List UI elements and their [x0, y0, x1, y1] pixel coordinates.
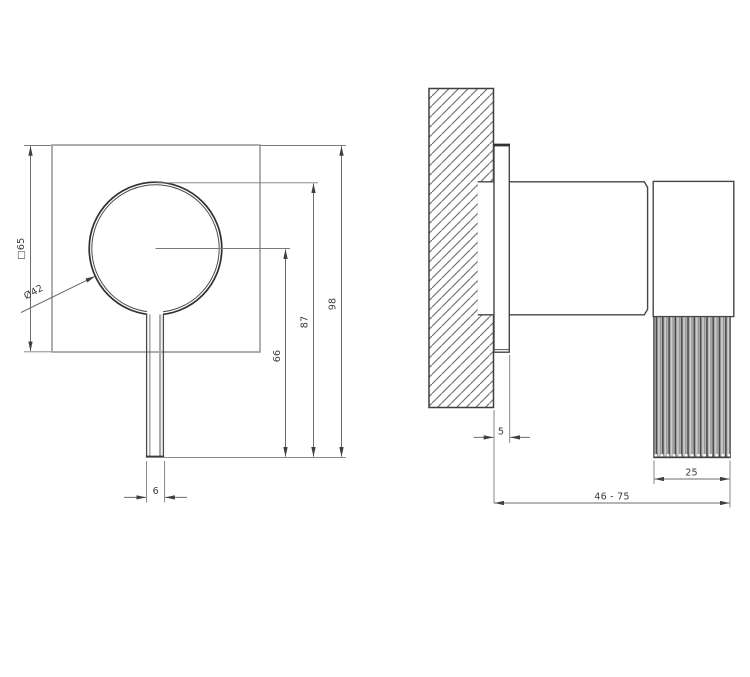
dim-98: 98 [328, 146, 342, 456]
dim-87: 87 [300, 184, 314, 457]
dim-6-label: 6 [153, 486, 159, 497]
dim-66-label: 66 [272, 350, 283, 363]
dim-46-75: 46 - 75 [495, 491, 730, 503]
technical-drawing-canvas: □65 Ø42 66 87 98 6 [0, 0, 750, 677]
side-knurled-grip [654, 317, 730, 458]
drawing-page: □65 Ø42 66 87 98 6 [0, 0, 750, 677]
dim-98-label: 98 [328, 298, 339, 311]
dim-66: 66 [272, 249, 286, 456]
dim-square-65: □65 [16, 146, 51, 352]
dim-42-label: Ø42 [22, 282, 46, 302]
dim-5-label: 5 [498, 426, 504, 437]
dim-25: 25 [654, 461, 730, 508]
dim-46-75-label: 46 - 75 [594, 491, 629, 502]
dim-87-label: 87 [300, 316, 311, 329]
dim-65-label: □65 [16, 238, 27, 260]
side-plate [494, 144, 509, 352]
side-knob-smooth [653, 181, 734, 316]
dim-6: 6 [124, 461, 187, 503]
front-view: □65 Ø42 66 87 98 6 [16, 145, 346, 503]
dim-25-label: 25 [685, 467, 698, 478]
side-view: 5 25 46 - 75 [429, 89, 734, 508]
side-knurl-texture [654, 317, 730, 458]
